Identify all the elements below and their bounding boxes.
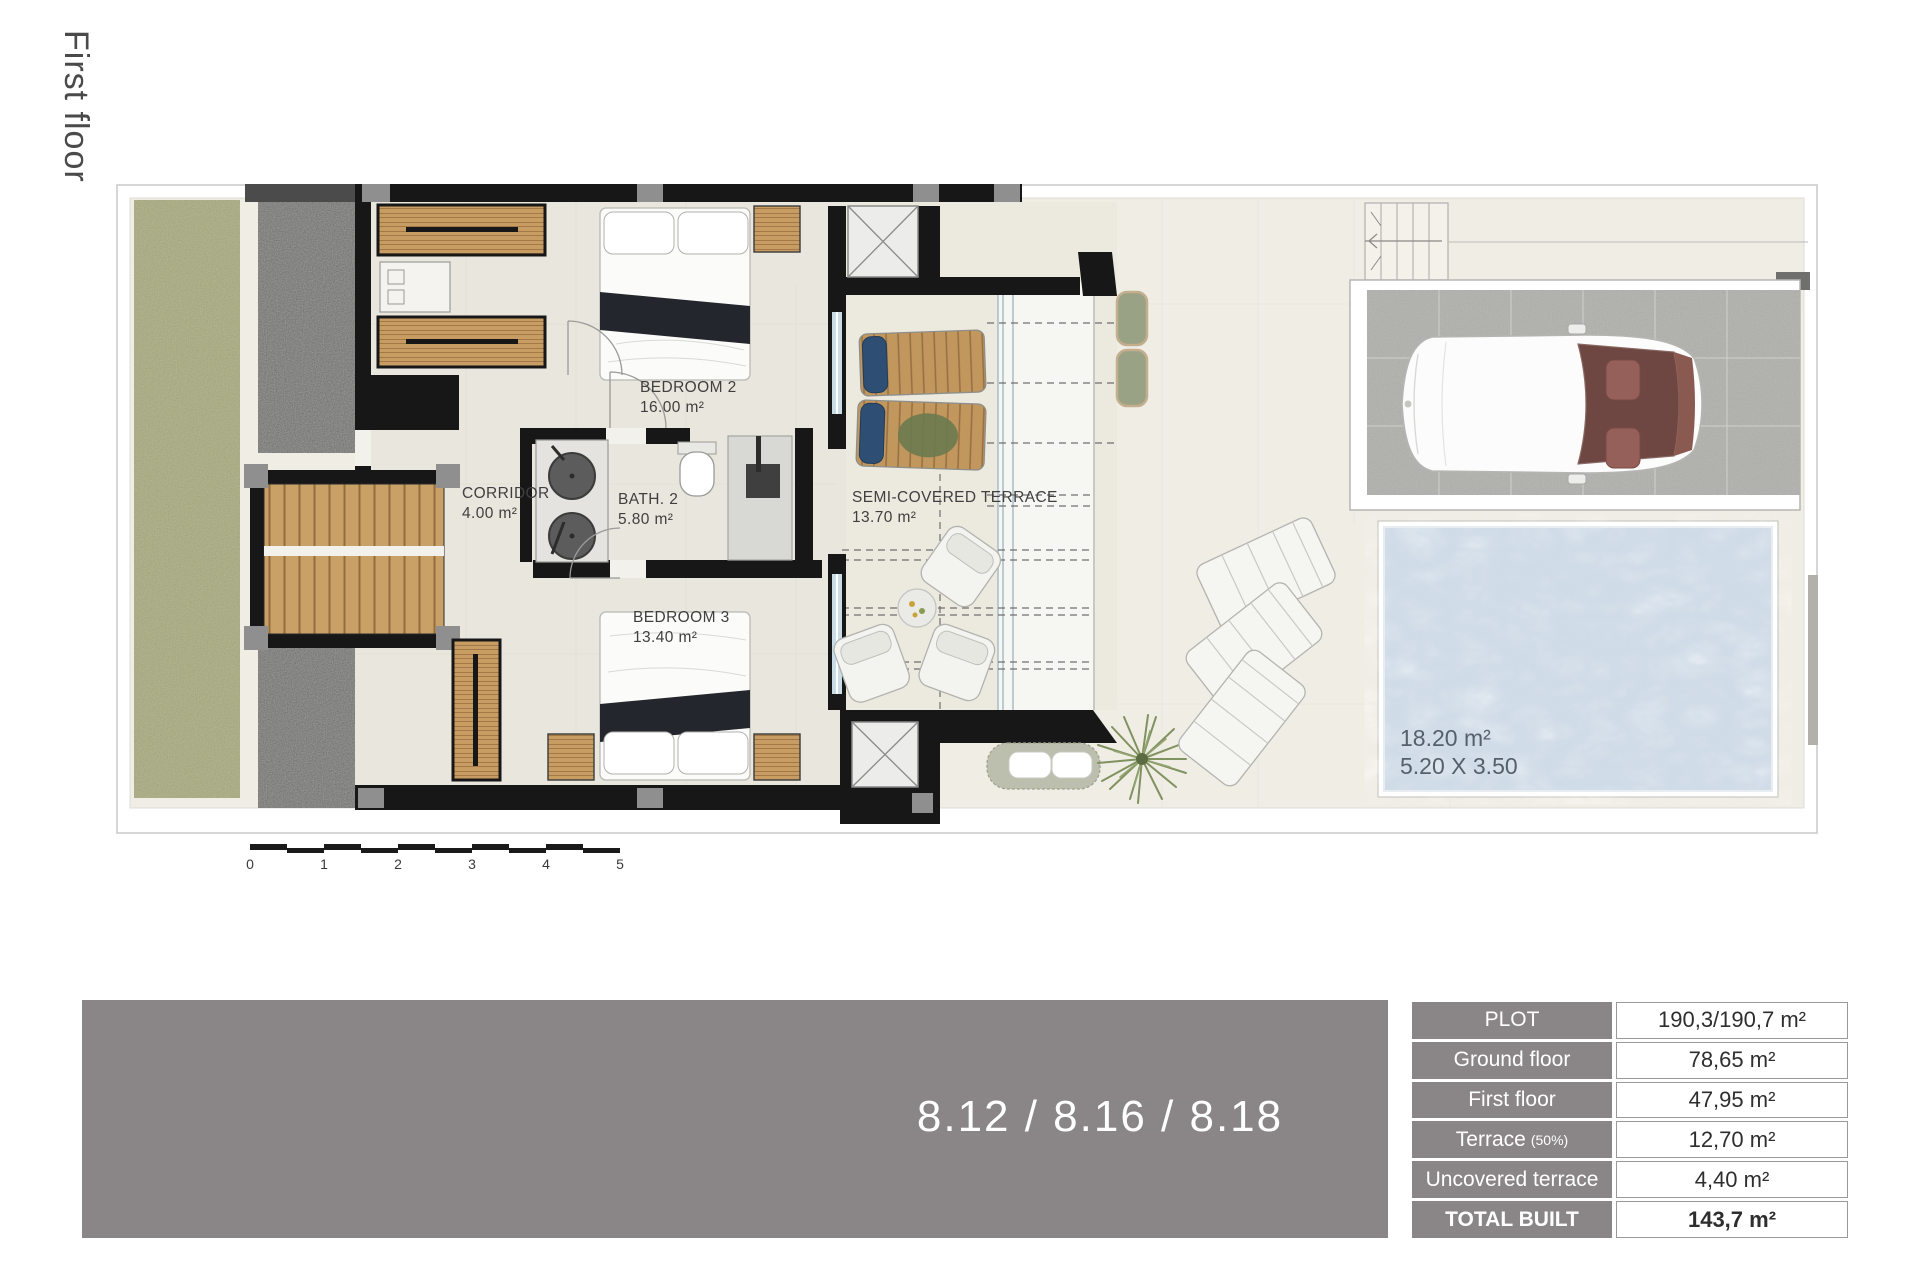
post bbox=[244, 464, 268, 488]
row-value: 12,70 m² bbox=[1616, 1121, 1848, 1158]
gravel-patio-top bbox=[258, 198, 355, 453]
row-value: 4,40 m² bbox=[1616, 1161, 1848, 1198]
nightstand bbox=[754, 206, 800, 252]
row-label: Terrace(50%) bbox=[1412, 1121, 1612, 1158]
room-label-terrace: SEMI-COVERED TERRACE bbox=[852, 489, 1058, 506]
pergola-chair-1 bbox=[1117, 292, 1147, 345]
scale-bar-line bbox=[250, 844, 620, 853]
floor-plan: BEDROOM 2 16.00 m² CORRIDOR 4.00 m² BATH… bbox=[116, 184, 1818, 834]
unit-numbers: 8.12 / 8.16 / 8.18 bbox=[917, 1092, 1283, 1142]
garden-strip bbox=[134, 200, 240, 798]
nightstand bbox=[548, 734, 594, 780]
table-row-plot: PLOT 190,3/190,7 m² bbox=[1412, 1002, 1848, 1039]
scale-tick: 4 bbox=[535, 856, 557, 872]
scale-tick: 2 bbox=[387, 856, 409, 872]
row-label: First floor bbox=[1412, 1082, 1612, 1119]
toilet bbox=[678, 442, 716, 496]
car-mirror bbox=[1568, 324, 1586, 334]
car-mirror bbox=[1568, 474, 1586, 484]
garden-wall bbox=[245, 184, 361, 202]
room-label-bedroom2: BEDROOM 2 bbox=[640, 379, 737, 396]
dresser bbox=[380, 262, 450, 312]
sun-lounger-1 bbox=[859, 330, 986, 396]
gravel-patio-bottom bbox=[258, 637, 355, 808]
stairs bbox=[244, 464, 460, 650]
row-label: Ground floor bbox=[1412, 1042, 1612, 1079]
unit-banner: 8.12 / 8.16 / 8.18 bbox=[82, 1000, 1388, 1238]
row-value: 47,95 m² bbox=[1616, 1082, 1848, 1119]
room-area-terrace: 13.70 m² bbox=[852, 509, 916, 526]
daybed bbox=[987, 743, 1100, 789]
table-row-uncovered-terrace: Uncovered terrace 4,40 m² bbox=[1412, 1161, 1848, 1198]
pool-dimensions: 5.20 X 3.50 bbox=[1400, 753, 1518, 779]
wardrobe-bedroom3 bbox=[453, 640, 500, 780]
table-row-ground-floor: Ground floor 78,65 m² bbox=[1412, 1042, 1848, 1079]
pool-area: 18.20 m² bbox=[1400, 725, 1491, 751]
room-area-corridor: 4.00 m² bbox=[462, 505, 517, 522]
table-row-first-floor: First floor 47,95 m² bbox=[1412, 1082, 1848, 1119]
room-label-bedroom3: BEDROOM 3 bbox=[633, 609, 730, 626]
post bbox=[244, 626, 268, 650]
row-label: TOTAL BUILT bbox=[1412, 1201, 1612, 1238]
car bbox=[1402, 324, 1702, 484]
scale-tick: 5 bbox=[609, 856, 631, 872]
room-area-bedroom3: 13.40 m² bbox=[633, 629, 697, 646]
row-value: 190,3/190,7 m² bbox=[1616, 1002, 1848, 1039]
room-label-corridor: CORRIDOR bbox=[462, 485, 550, 502]
shaft-crossed-box-top bbox=[848, 206, 918, 277]
table-row-terrace: Terrace(50%) 12,70 m² bbox=[1412, 1121, 1848, 1158]
scale-tick: 0 bbox=[239, 856, 261, 872]
sun-lounger-2 bbox=[856, 400, 986, 470]
row-label: PLOT bbox=[1412, 1002, 1612, 1039]
parking bbox=[1350, 280, 1800, 510]
nightstand bbox=[754, 734, 800, 780]
post bbox=[436, 464, 460, 488]
shower bbox=[728, 436, 792, 560]
room-label-bath2: BATH. 2 bbox=[618, 491, 678, 508]
wardrobe-top bbox=[378, 205, 545, 255]
floor-plan-drawing: BEDROOM 2 16.00 m² CORRIDOR 4.00 m² BATH… bbox=[116, 184, 1818, 834]
areas-table: PLOT 190,3/190,7 m² Ground floor 78,65 m… bbox=[1412, 1002, 1848, 1238]
scale-bar: 0 1 2 3 4 5 bbox=[250, 844, 622, 878]
shaft-crossed-box-bottom bbox=[852, 722, 918, 787]
row-label: Uncovered terrace bbox=[1412, 1161, 1612, 1198]
room-area-bedroom2: 16.00 m² bbox=[640, 399, 704, 416]
side-table bbox=[898, 589, 936, 627]
table-row-total-built: TOTAL BUILT 143,7 m² bbox=[1412, 1201, 1848, 1238]
page-title: First floor bbox=[56, 30, 95, 220]
plot-edge-bar bbox=[1808, 575, 1818, 745]
room-area-bath2: 5.80 m² bbox=[618, 511, 673, 528]
pergola-chair-2 bbox=[1117, 350, 1147, 406]
scale-tick: 1 bbox=[313, 856, 335, 872]
row-value: 78,65 m² bbox=[1616, 1042, 1848, 1079]
scale-tick: 3 bbox=[461, 856, 483, 872]
wardrobe-mid bbox=[378, 317, 545, 367]
row-value: 143,7 m² bbox=[1616, 1201, 1848, 1238]
